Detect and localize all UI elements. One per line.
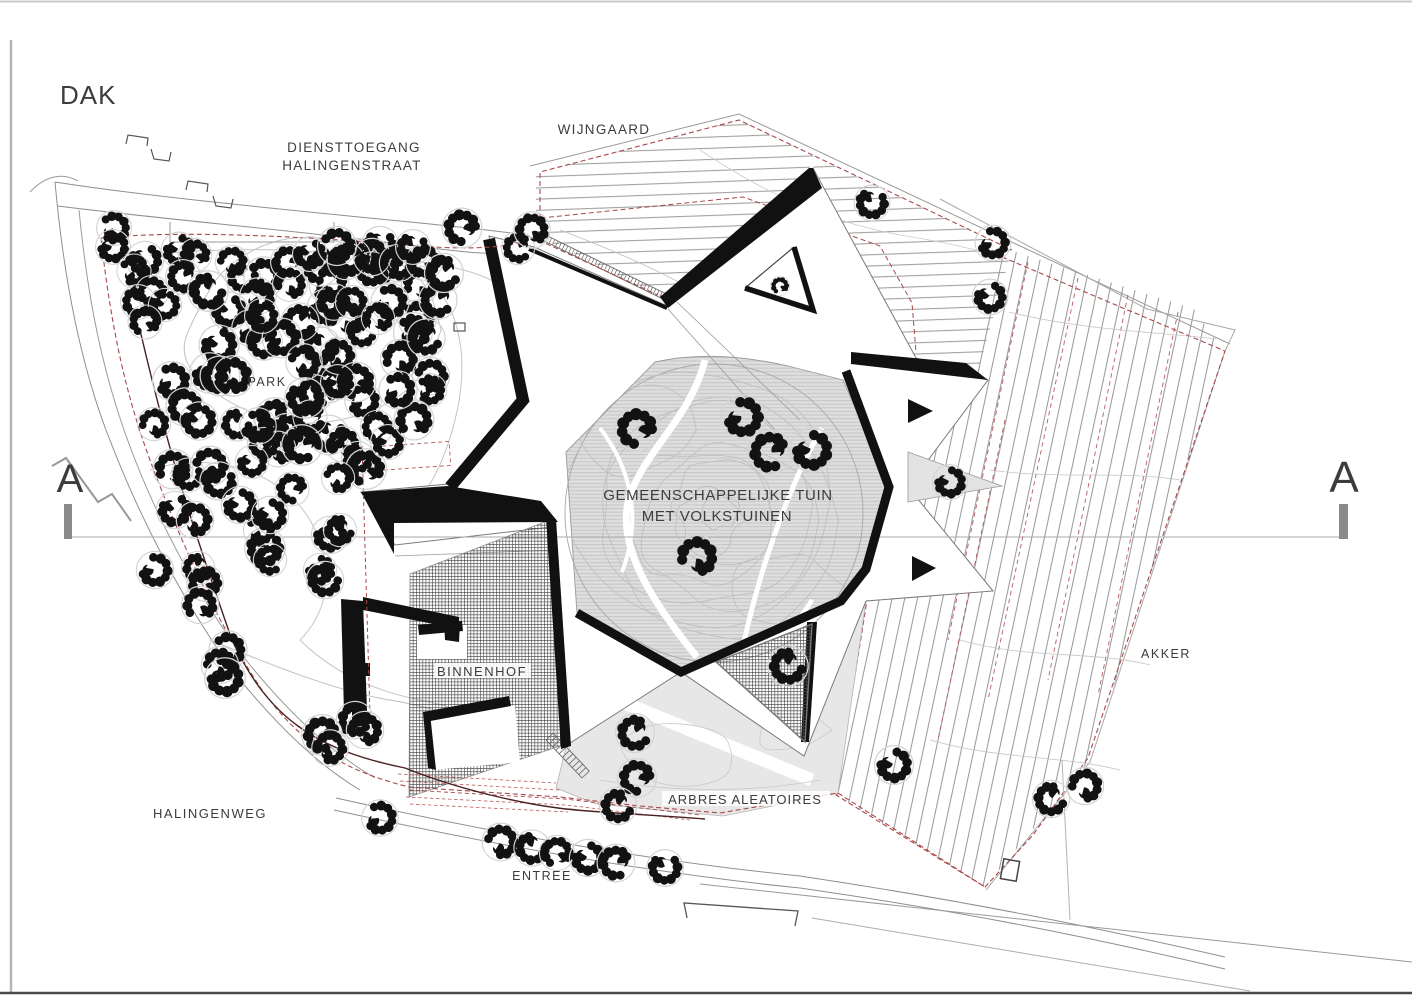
svg-text:PARK: PARK [247, 375, 286, 389]
svg-text:HALINGENWEG: HALINGENWEG [153, 806, 267, 821]
svg-text:DIENSTTOEGANG: DIENSTTOEGANG [287, 140, 421, 155]
svg-text:WIJNGAARD: WIJNGAARD [558, 122, 651, 137]
svg-text:BINNENHOF: BINNENHOF [437, 664, 527, 679]
svg-text:DAK: DAK [60, 80, 116, 110]
svg-text:ARBRES ALEATOIRES: ARBRES ALEATOIRES [668, 792, 822, 807]
svg-text:A: A [57, 457, 84, 501]
svg-text:MET VOLKSTUINEN: MET VOLKSTUINEN [642, 508, 792, 525]
svg-text:GEMEENSCHAPPELIJKE TUIN: GEMEENSCHAPPELIJKE TUIN [603, 487, 832, 504]
svg-text:AKKER: AKKER [1141, 647, 1191, 661]
svg-text:A: A [1329, 453, 1359, 502]
svg-text:ENTREE: ENTREE [512, 869, 572, 883]
svg-text:HALINGENSTRAAT: HALINGENSTRAAT [282, 158, 421, 173]
